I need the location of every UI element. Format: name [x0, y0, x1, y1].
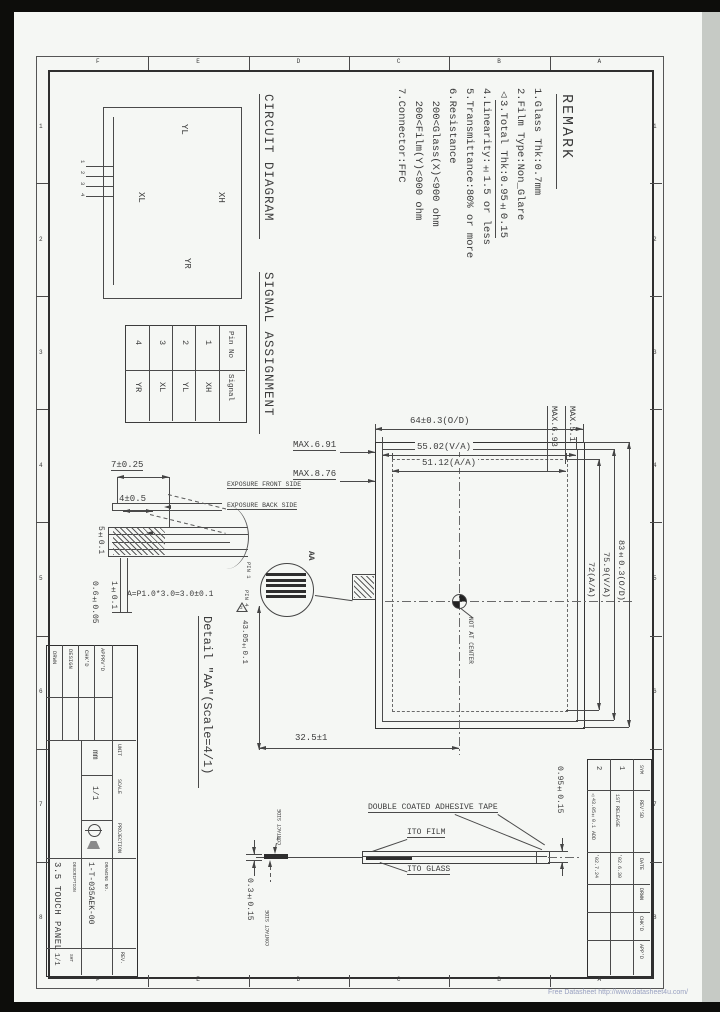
note-exposure-back: EXPOSURE BACK SIDE	[227, 502, 297, 510]
zone-tick	[650, 862, 662, 863]
signal-table-cell: XH	[203, 382, 213, 392]
zone-number: 6	[653, 688, 657, 695]
zone-number: 8	[39, 914, 43, 921]
description-value: 3.5 TOUCH PANEL	[52, 862, 62, 951]
signal-table-cell: 2	[180, 340, 190, 345]
remark-item: 5.Transmittance:80% or more	[460, 88, 477, 433]
zone-letter: E	[196, 58, 200, 65]
zone-tick	[550, 56, 551, 70]
detail-title: Detail "AA"(Scale=4/1)	[198, 616, 214, 788]
signoff-drwn: DRWN	[51, 651, 58, 664]
dim-max876: MAX.8.76	[293, 469, 336, 480]
zone-tick	[249, 56, 250, 70]
note-pitch: A=P1.0*3.0=3.0±0.1	[127, 590, 213, 599]
zone-tick	[349, 975, 350, 987]
zone-tick	[449, 56, 450, 70]
tail-hatch	[354, 576, 374, 598]
rev-row-date: '02.6.30	[616, 854, 622, 878]
signal-assignment-title: SIGNAL ASSIGNMENT	[259, 272, 275, 434]
watermark: Free Datasheet http://www.datasheet4u.co…	[548, 989, 688, 996]
dim-line	[629, 442, 630, 727]
dim-max693: MAX.6.93	[547, 406, 559, 472]
circuit-wire	[86, 166, 113, 167]
rev-row-desc: 1ST RELEASE	[614, 794, 620, 827]
zone-tick	[36, 749, 48, 750]
zone-letter: D	[297, 976, 301, 983]
label-contact-side-bottom: CONTACT SIDE	[265, 884, 271, 946]
center-mark	[452, 594, 467, 609]
zone-tick	[650, 296, 662, 297]
note-exposure-front: EXPOSURE FRONT SIDE	[227, 481, 301, 489]
drawing-number-label: DRAWING NO.	[103, 862, 108, 892]
circuit-label-yl: YL	[179, 124, 189, 135]
circuit-label-xh: XH	[216, 192, 226, 203]
dim-od-height: 83±0.3(O/D)	[616, 540, 626, 601]
zone-number: 6	[39, 688, 43, 695]
zone-letter: F	[96, 58, 100, 65]
zone-number: 4	[653, 462, 657, 469]
zone-letter: C	[397, 58, 401, 65]
circuit-pin-number: 1	[79, 160, 86, 163]
circuit-pin-number: 4	[79, 193, 86, 196]
signal-table-cell: YL	[180, 382, 190, 392]
zone-number: 5	[39, 575, 43, 582]
scale-value: 1/1	[90, 786, 99, 800]
zone-letter: E	[196, 976, 200, 983]
circuit-box	[103, 107, 242, 299]
section-label: AA	[306, 551, 315, 561]
dim-max691: MAX.6.91	[293, 440, 336, 451]
signal-table-cell: YR	[133, 382, 143, 392]
zone-number: 2	[39, 236, 43, 243]
dim-43: 43.05±0.1	[240, 620, 248, 664]
zone-tick	[249, 975, 250, 987]
zone-number: 4	[39, 462, 43, 469]
circuit-pin-number: 3	[79, 182, 86, 185]
rev-header: DRWN	[638, 888, 644, 900]
zone-tick	[36, 522, 48, 523]
zone-tick	[650, 749, 662, 750]
signoff-design: DESIGN	[67, 649, 74, 669]
zone-number: 8	[653, 914, 657, 921]
signal-table-cell: 3	[157, 340, 167, 345]
circuit-wire	[86, 196, 113, 197]
revision-triangle-icon: △	[497, 88, 509, 100]
dim-va-width: 55.02(V/A)	[415, 442, 473, 452]
label-ito-film: ITO FILM	[407, 828, 445, 838]
circuit-label-yr: YR	[182, 258, 192, 269]
dim-line	[614, 449, 615, 720]
signal-table-header-signal: Signal	[226, 374, 234, 401]
scale-label: SCALE	[116, 779, 122, 794]
dim-325: 32.5±1	[293, 733, 329, 743]
dim-line	[259, 606, 260, 750]
dim-line	[259, 748, 459, 749]
zone-letter: F	[96, 976, 100, 983]
rev-row-date: '02.7.24	[593, 854, 599, 878]
zone-tick	[550, 975, 551, 987]
zone-tick	[148, 56, 149, 70]
revision-triangle-icon: 2	[236, 602, 248, 613]
zone-letter: B	[497, 58, 501, 65]
zone-tick	[650, 636, 662, 637]
dim-aa-width: 51.12(A/A)	[420, 458, 478, 468]
zone-tick	[36, 636, 48, 637]
remark-item: 1.Glass Thk:0.7mm	[528, 88, 545, 433]
sheet-label: SHT	[68, 954, 73, 962]
zone-letter: A	[598, 976, 602, 983]
zone-number: 1	[653, 123, 657, 130]
dim-5: 5±0.1	[96, 526, 105, 554]
drawing-number: 1-T-035AEK-00	[86, 862, 95, 924]
rev-row-desc: △43.05±0.1 ADD	[590, 792, 596, 840]
zone-number: 2	[653, 236, 657, 243]
zone-number: 5	[653, 575, 657, 582]
remark-item: 7.Connector:FFC	[392, 88, 409, 433]
zone-tick	[36, 183, 48, 184]
zone-tick	[36, 862, 48, 863]
remark-item: △3.Total Thk:0.95±0.15	[494, 88, 511, 433]
rev-header: SYM	[638, 765, 644, 774]
circuit-label-xl: XL	[136, 192, 146, 203]
centerline	[385, 601, 635, 602]
dim-od-width: 64±0.3(O/D)	[408, 416, 471, 426]
signoff-apprvd: APPRV'D	[99, 648, 106, 671]
zone-letter: B	[497, 976, 501, 983]
remark-item: 200<Glass(X)<900 ohm	[426, 88, 443, 433]
remark-item: 2.Film Type:Non_Glare	[511, 88, 528, 433]
center-note: NOT AT CENTER	[467, 617, 474, 664]
zone-number: 3	[653, 349, 657, 356]
dim-095: 0.95±0.15	[555, 766, 564, 813]
dim-max51: MAX.5.1	[565, 406, 577, 464]
zone-letter: A	[598, 58, 602, 65]
zone-tick	[650, 409, 662, 410]
zone-tick	[650, 522, 662, 523]
dim-line	[599, 459, 600, 710]
signal-table-header-pin: Pin No	[226, 331, 234, 358]
rev-header: APP'D	[638, 944, 644, 959]
signal-table-cell: XL	[157, 382, 167, 392]
rev-row-number: 2	[594, 766, 602, 770]
circuit-diagram-title: CIRCUIT DIAGRAM	[259, 94, 275, 239]
zone-tick	[36, 409, 48, 410]
zone-letter: C	[397, 976, 401, 983]
circuit-wire	[86, 176, 113, 177]
description-label: DESCRIPTION	[71, 862, 76, 892]
zone-letter: D	[297, 58, 301, 65]
rev-label: REV.	[119, 952, 125, 964]
remark-item: 6.Resistance	[443, 88, 460, 433]
zone-tick	[349, 56, 350, 70]
zone-number: 3	[39, 349, 43, 356]
signal-table-cell: 4	[133, 340, 143, 345]
unit-label: UNIT	[116, 744, 122, 756]
signal-table-cell: 1	[203, 340, 213, 345]
zone-tick	[148, 975, 149, 987]
pin1-label: PIN 1	[245, 562, 252, 579]
zone-tick	[36, 296, 48, 297]
signoff-chkd: CHK'D	[83, 650, 90, 667]
film-layer	[366, 857, 412, 860]
zone-number: 7	[653, 801, 657, 808]
zone-tick	[650, 183, 662, 184]
rev-header: DATE	[638, 858, 644, 870]
panel-active-area	[392, 459, 568, 712]
dim-1: 1±0.1	[109, 581, 118, 609]
circuit-pin-number: 2	[79, 171, 86, 174]
remark-list: 1.Glass Thk:0.7mm 2.Film Type:Non_Glare …	[383, 88, 545, 433]
circuit-wire	[86, 186, 113, 187]
remark-item: 200<Film(Y)<900 ohm	[409, 88, 426, 433]
remark-title: REMARK	[556, 94, 575, 189]
zone-number: 7	[39, 801, 43, 808]
unit-value: mm	[90, 750, 99, 760]
dim-line	[392, 471, 566, 472]
remark-item: 4.Linearity:±1.5 or less	[477, 88, 494, 433]
projection-symbol-icon	[88, 824, 101, 837]
dim-03: 0.3±0.15	[245, 878, 254, 921]
dim-aa-height: 72(A/A)	[586, 562, 596, 598]
scanner-edge	[702, 12, 720, 1002]
rev-header: CHK'D	[638, 916, 644, 931]
circuit-inner-line	[113, 117, 114, 285]
sheet-value: 1/1	[52, 953, 60, 966]
label-ito-glass: ITO GLASS	[407, 865, 450, 875]
zone-number: 1	[39, 123, 43, 130]
dim-va-height: 75.9(V/A)	[601, 552, 611, 598]
projection-label: PROJECTION	[116, 823, 122, 853]
dim-4: 4±0.5	[119, 494, 146, 504]
rev-header: REV'SD	[638, 800, 644, 818]
rev-row-number: 1	[617, 766, 625, 770]
zone-tick	[449, 975, 450, 987]
dim-7: 7±0.25	[111, 460, 143, 471]
tail-stiffener	[264, 854, 288, 859]
section-hatch	[113, 528, 165, 555]
label-adhesive-tape: DOUBLE COATED ADHESIVE TAPE	[368, 803, 498, 813]
dim-06: 0.6±0.05	[90, 581, 99, 624]
